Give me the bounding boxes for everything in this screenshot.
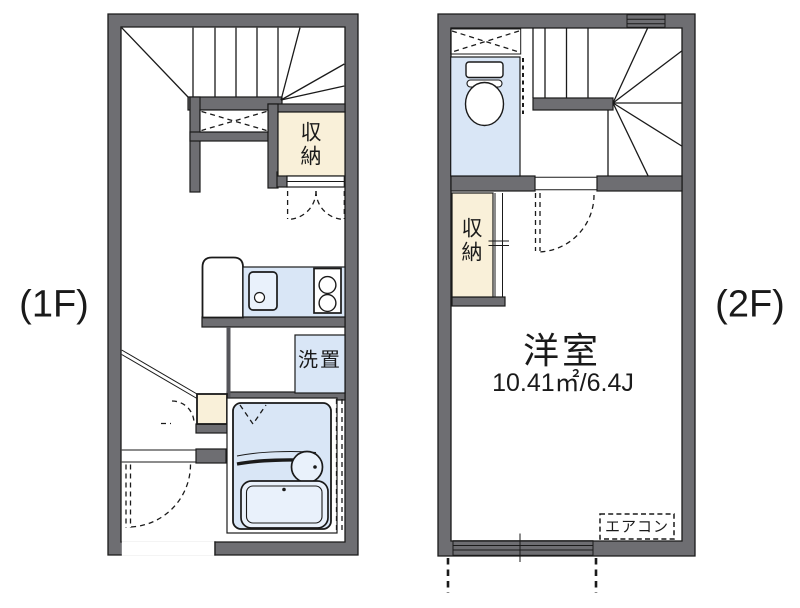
bathroom-1f (227, 398, 342, 533)
floor-plan-1f (108, 14, 358, 556)
aircon-label-2f: エアコン (605, 516, 669, 537)
toilet-bowl (466, 83, 504, 126)
open-shelf-1f (200, 110, 268, 132)
understair-1f (122, 350, 227, 424)
folding-door-arc-left (288, 191, 316, 219)
stove-burner-1 (319, 277, 336, 294)
floor1-label: (1F) (19, 284, 89, 327)
room-door-2f (535, 177, 597, 252)
sink-drain (255, 293, 265, 303)
room-door-arc (537, 195, 594, 252)
toilet-room (451, 29, 523, 176)
wire-shelf (451, 29, 521, 54)
stairs-1f (122, 28, 345, 100)
floorplan-canvas (0, 0, 800, 608)
entrance-1f (122, 450, 196, 528)
small-door-arc (172, 401, 194, 423)
entrance-door-arc (128, 465, 191, 528)
tub-drain-dot (282, 488, 286, 492)
storage-label-1f: 収納 (300, 121, 322, 168)
floor-plan-2f (438, 14, 695, 593)
floor2-label: (2F) (715, 284, 785, 327)
shoe-cabinet (197, 394, 227, 424)
folding-door-arc-right (316, 191, 344, 219)
floorplan-page: (1F) (2F) 収納 洗置 収納 洋室 10.41㎡/6.4J エアコン (0, 0, 800, 608)
storage-label-2f: 収納 (461, 217, 483, 264)
porch-recess (122, 541, 215, 556)
stove-burner-2 (319, 295, 336, 312)
washer-label-1f: 洗置 (298, 344, 342, 373)
room-area-label-2f: 10.41㎡/6.4J (492, 363, 634, 399)
sink (249, 272, 277, 310)
toilet-tank (466, 62, 503, 78)
balcony-lines (448, 558, 596, 593)
basin-tap-dot (313, 465, 317, 469)
refrigerator (203, 258, 244, 318)
wash-basin (292, 452, 323, 483)
